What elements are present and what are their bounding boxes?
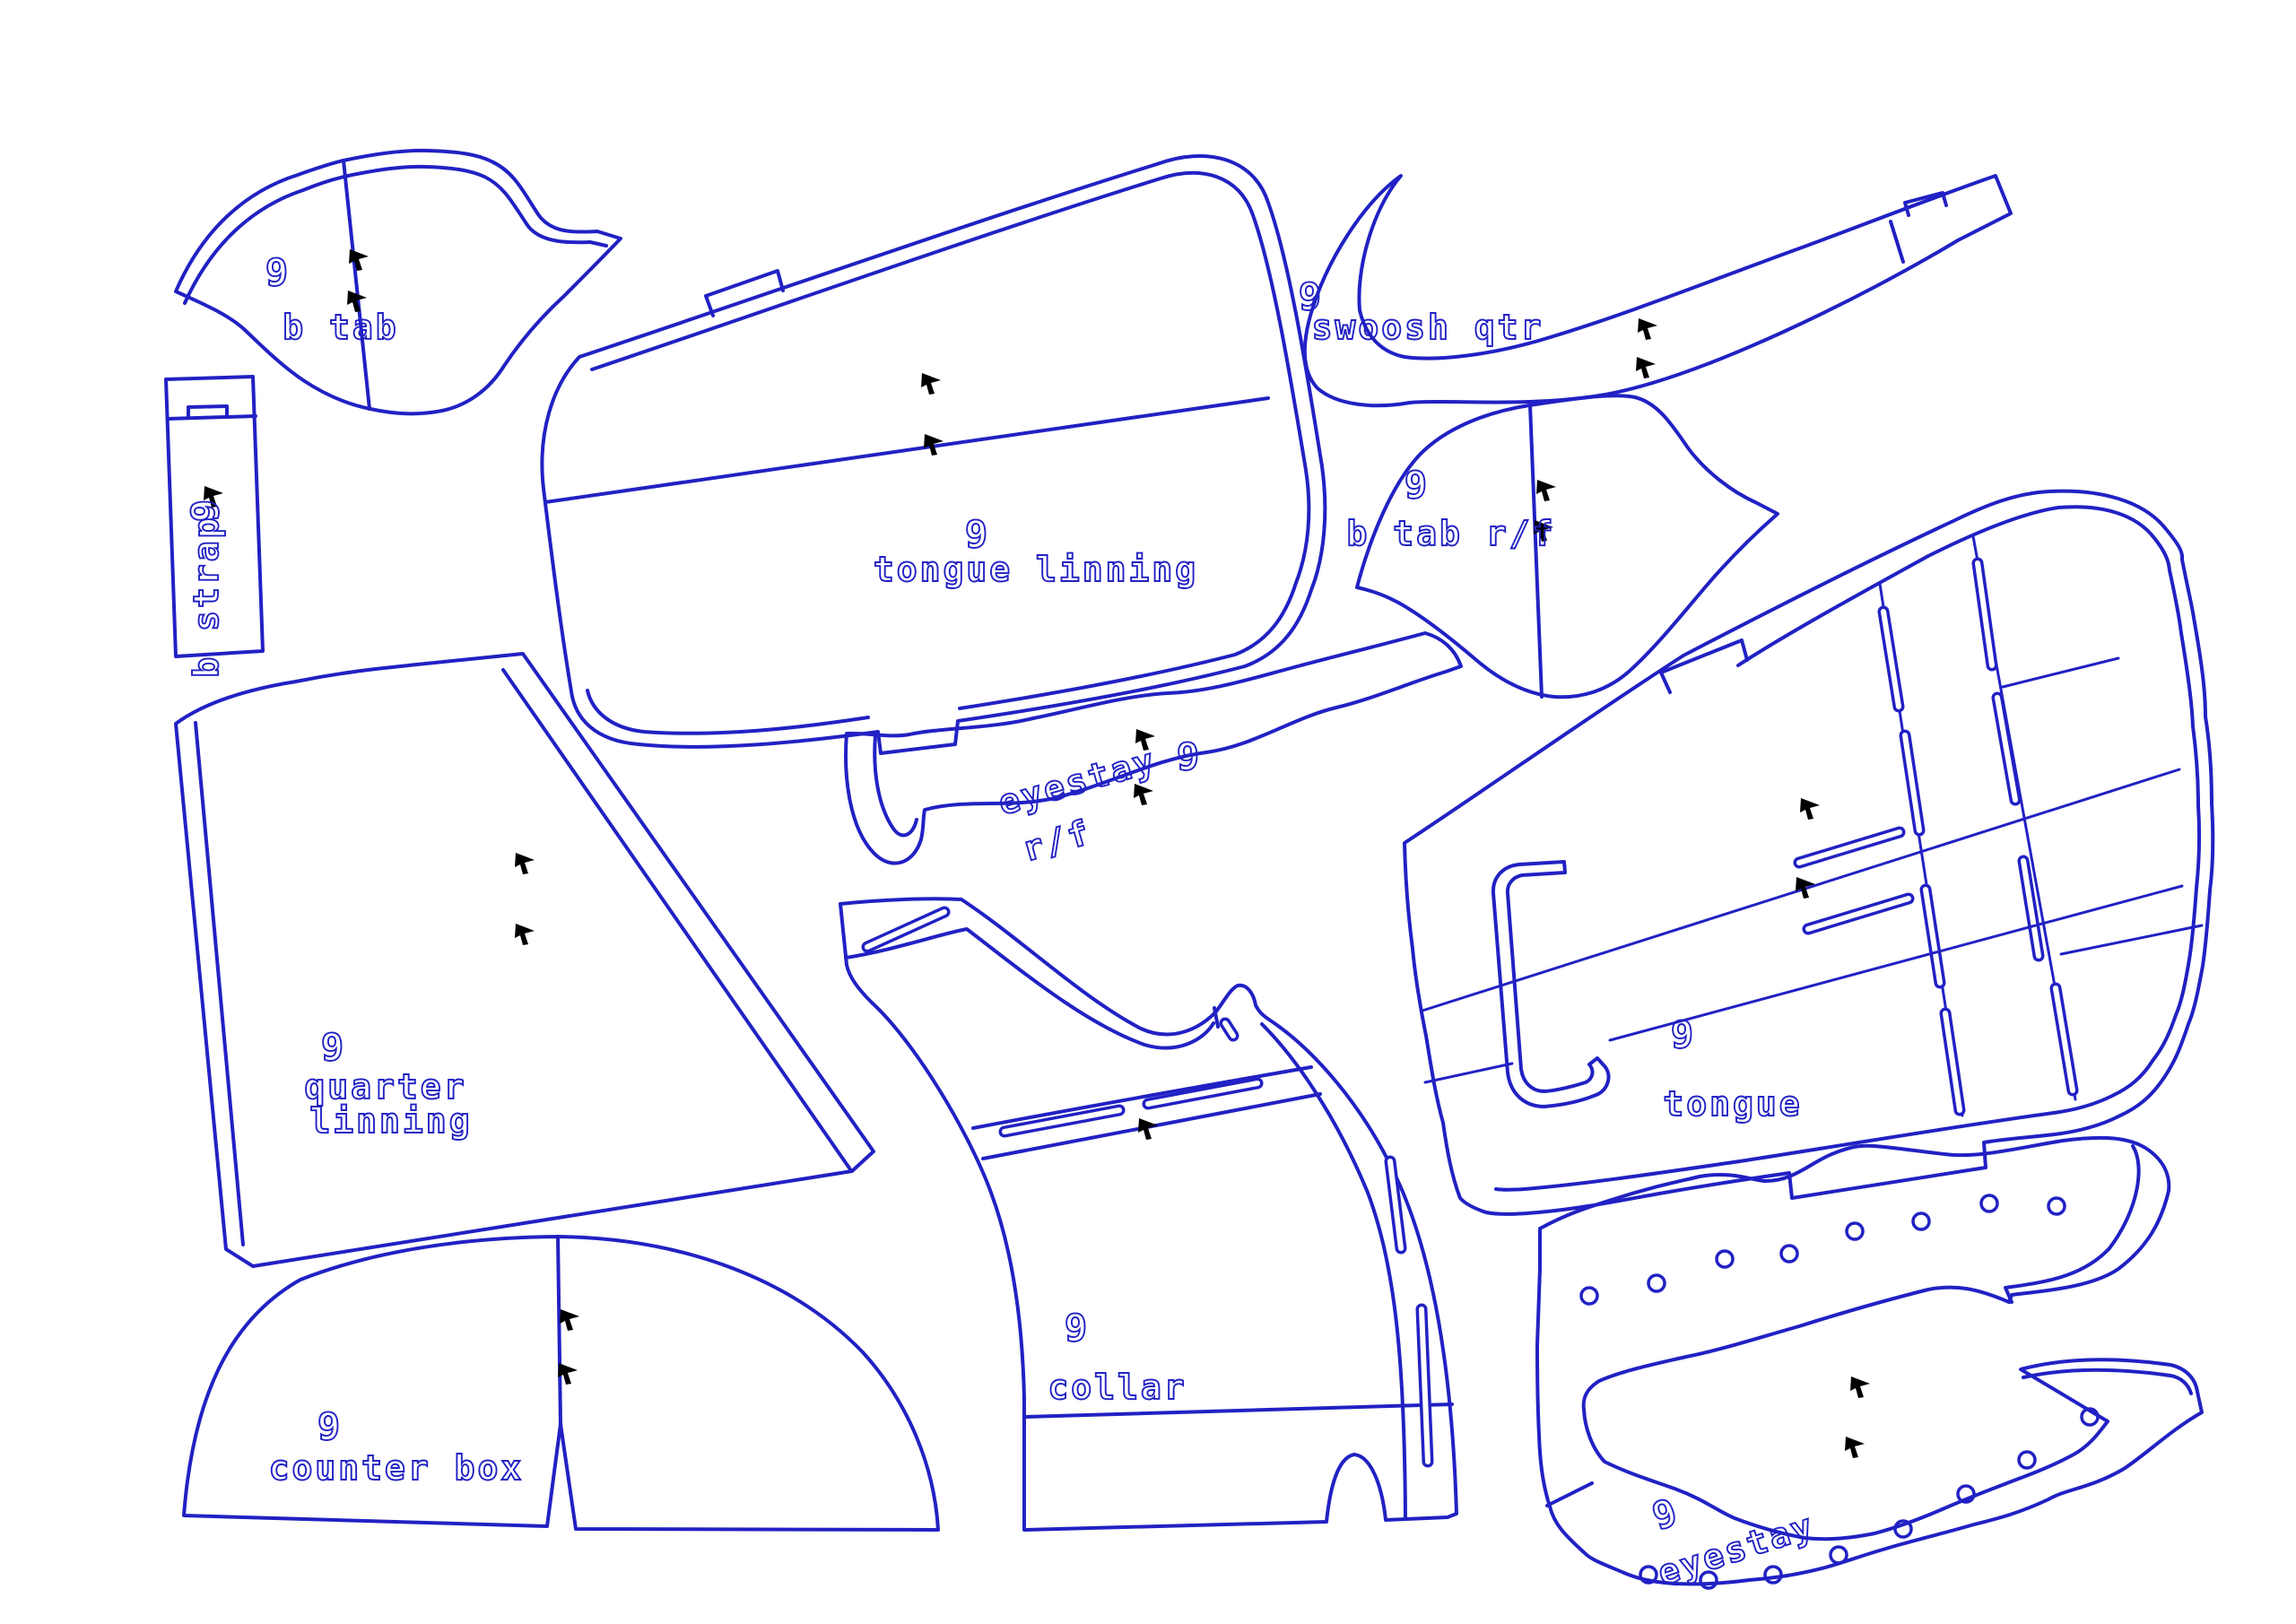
notch-arrow-icon (1636, 357, 1656, 378)
notch-arrow-icon (515, 853, 535, 874)
pattern-drawing: 9 b tab 9 b strap 9 tongue linning 9 swo… (0, 0, 2296, 1624)
tongue-hook-slot (1493, 862, 1609, 1107)
piece-label-line2: r/f (1018, 812, 1096, 870)
piece-label: eyestay (994, 740, 1161, 822)
b-tab-outline (176, 151, 621, 413)
collar-outline (840, 899, 1457, 1530)
eyestay-bottom-end-facing (2023, 1370, 2191, 1394)
piece-label: counter box (269, 1448, 525, 1488)
piece-quarter-linning[interactable]: 9 quarter linning (176, 654, 874, 1266)
piece-label: collar (1048, 1368, 1187, 1407)
notch-arrow-icon (1134, 784, 1153, 805)
swoosh-qtr-end-line (1891, 221, 1903, 262)
piece-label: swoosh qtr (1312, 308, 1544, 347)
notch-arrow-icon (560, 1309, 579, 1331)
piece-label: tongue linning (874, 550, 1198, 589)
notch-arrow-icon (1138, 1118, 1158, 1140)
piece-label: tongue (1663, 1084, 1802, 1124)
b-strap-fold-line (168, 416, 256, 419)
piece-counter-box[interactable]: 9 counter box (184, 1237, 938, 1530)
piece-swoosh-qtr[interactable]: 9 swoosh qtr (1299, 176, 2011, 405)
notch-arrow-icon (1536, 480, 1556, 501)
counter-box-center-line (558, 1237, 561, 1424)
notch-arrow-icon (349, 249, 369, 271)
tongue-linning-stitch-line-2 (587, 690, 868, 734)
notch-arrow-icon (515, 924, 535, 945)
piece-b-tab[interactable]: 9 b tab (176, 151, 621, 413)
tongue-top-notch (1661, 640, 1747, 692)
notch-arrow-icon (1800, 798, 1820, 820)
piece-label: b tab r/f (1347, 514, 1556, 553)
size-marker: 9 (321, 1025, 346, 1069)
size-marker: 9 (1405, 463, 1430, 507)
notch-arrow-icon (1845, 1437, 1865, 1458)
piece-eyestay[interactable]: 9 eyestay (1537, 1138, 2202, 1594)
pattern-canvas: 9 b tab 9 b strap 9 tongue linning 9 swo… (0, 0, 2296, 1624)
collar-right-band (1262, 1024, 1405, 1517)
eyestay-outline (1537, 1138, 2202, 1585)
size-marker: 9 (1647, 1489, 1684, 1539)
notch-arrow-icon (1638, 318, 1657, 340)
tongue-linning-fold-line (545, 398, 1268, 502)
piece-label-line2: linning (309, 1101, 472, 1141)
size-marker: 9 (317, 1404, 343, 1448)
notch-arrow-icon (1850, 1376, 1870, 1398)
collar-inner-curve (846, 929, 1213, 1048)
piece-tongue[interactable]: 9 tongue (1405, 491, 2213, 1214)
quarter-linning-outline (176, 654, 874, 1266)
tongue-lace-slots (1799, 563, 2073, 1110)
b-tab-center-line (344, 161, 370, 409)
eyestay-top-end-facing (2005, 1146, 2139, 1302)
tongue-linning-stitch-line (592, 173, 1309, 708)
piece-label: b tab (283, 308, 398, 347)
piece-tongue-linning[interactable]: 9 tongue linning (542, 156, 1325, 753)
size-marker: 9 (1065, 1306, 1090, 1350)
b-tab-stitch-line (185, 167, 606, 303)
notch-arrow-icon (921, 373, 941, 395)
size-marker: 9 (1177, 734, 1202, 778)
piece-label: b strap (187, 515, 226, 677)
swoosh-qtr-outline (1305, 176, 2011, 405)
collar-diagonal-band-upper (973, 1067, 1311, 1128)
size-marker: 9 (265, 250, 291, 294)
piece-b-strap[interactable]: 9 b strap (166, 377, 263, 678)
eyestay-seam-line (1547, 1483, 1592, 1506)
size-marker: 9 (1671, 1012, 1696, 1056)
piece-eyestay-rf[interactable]: 9 eyestay r/f (846, 633, 1461, 869)
piece-collar[interactable]: 9 collar (840, 899, 1457, 1530)
